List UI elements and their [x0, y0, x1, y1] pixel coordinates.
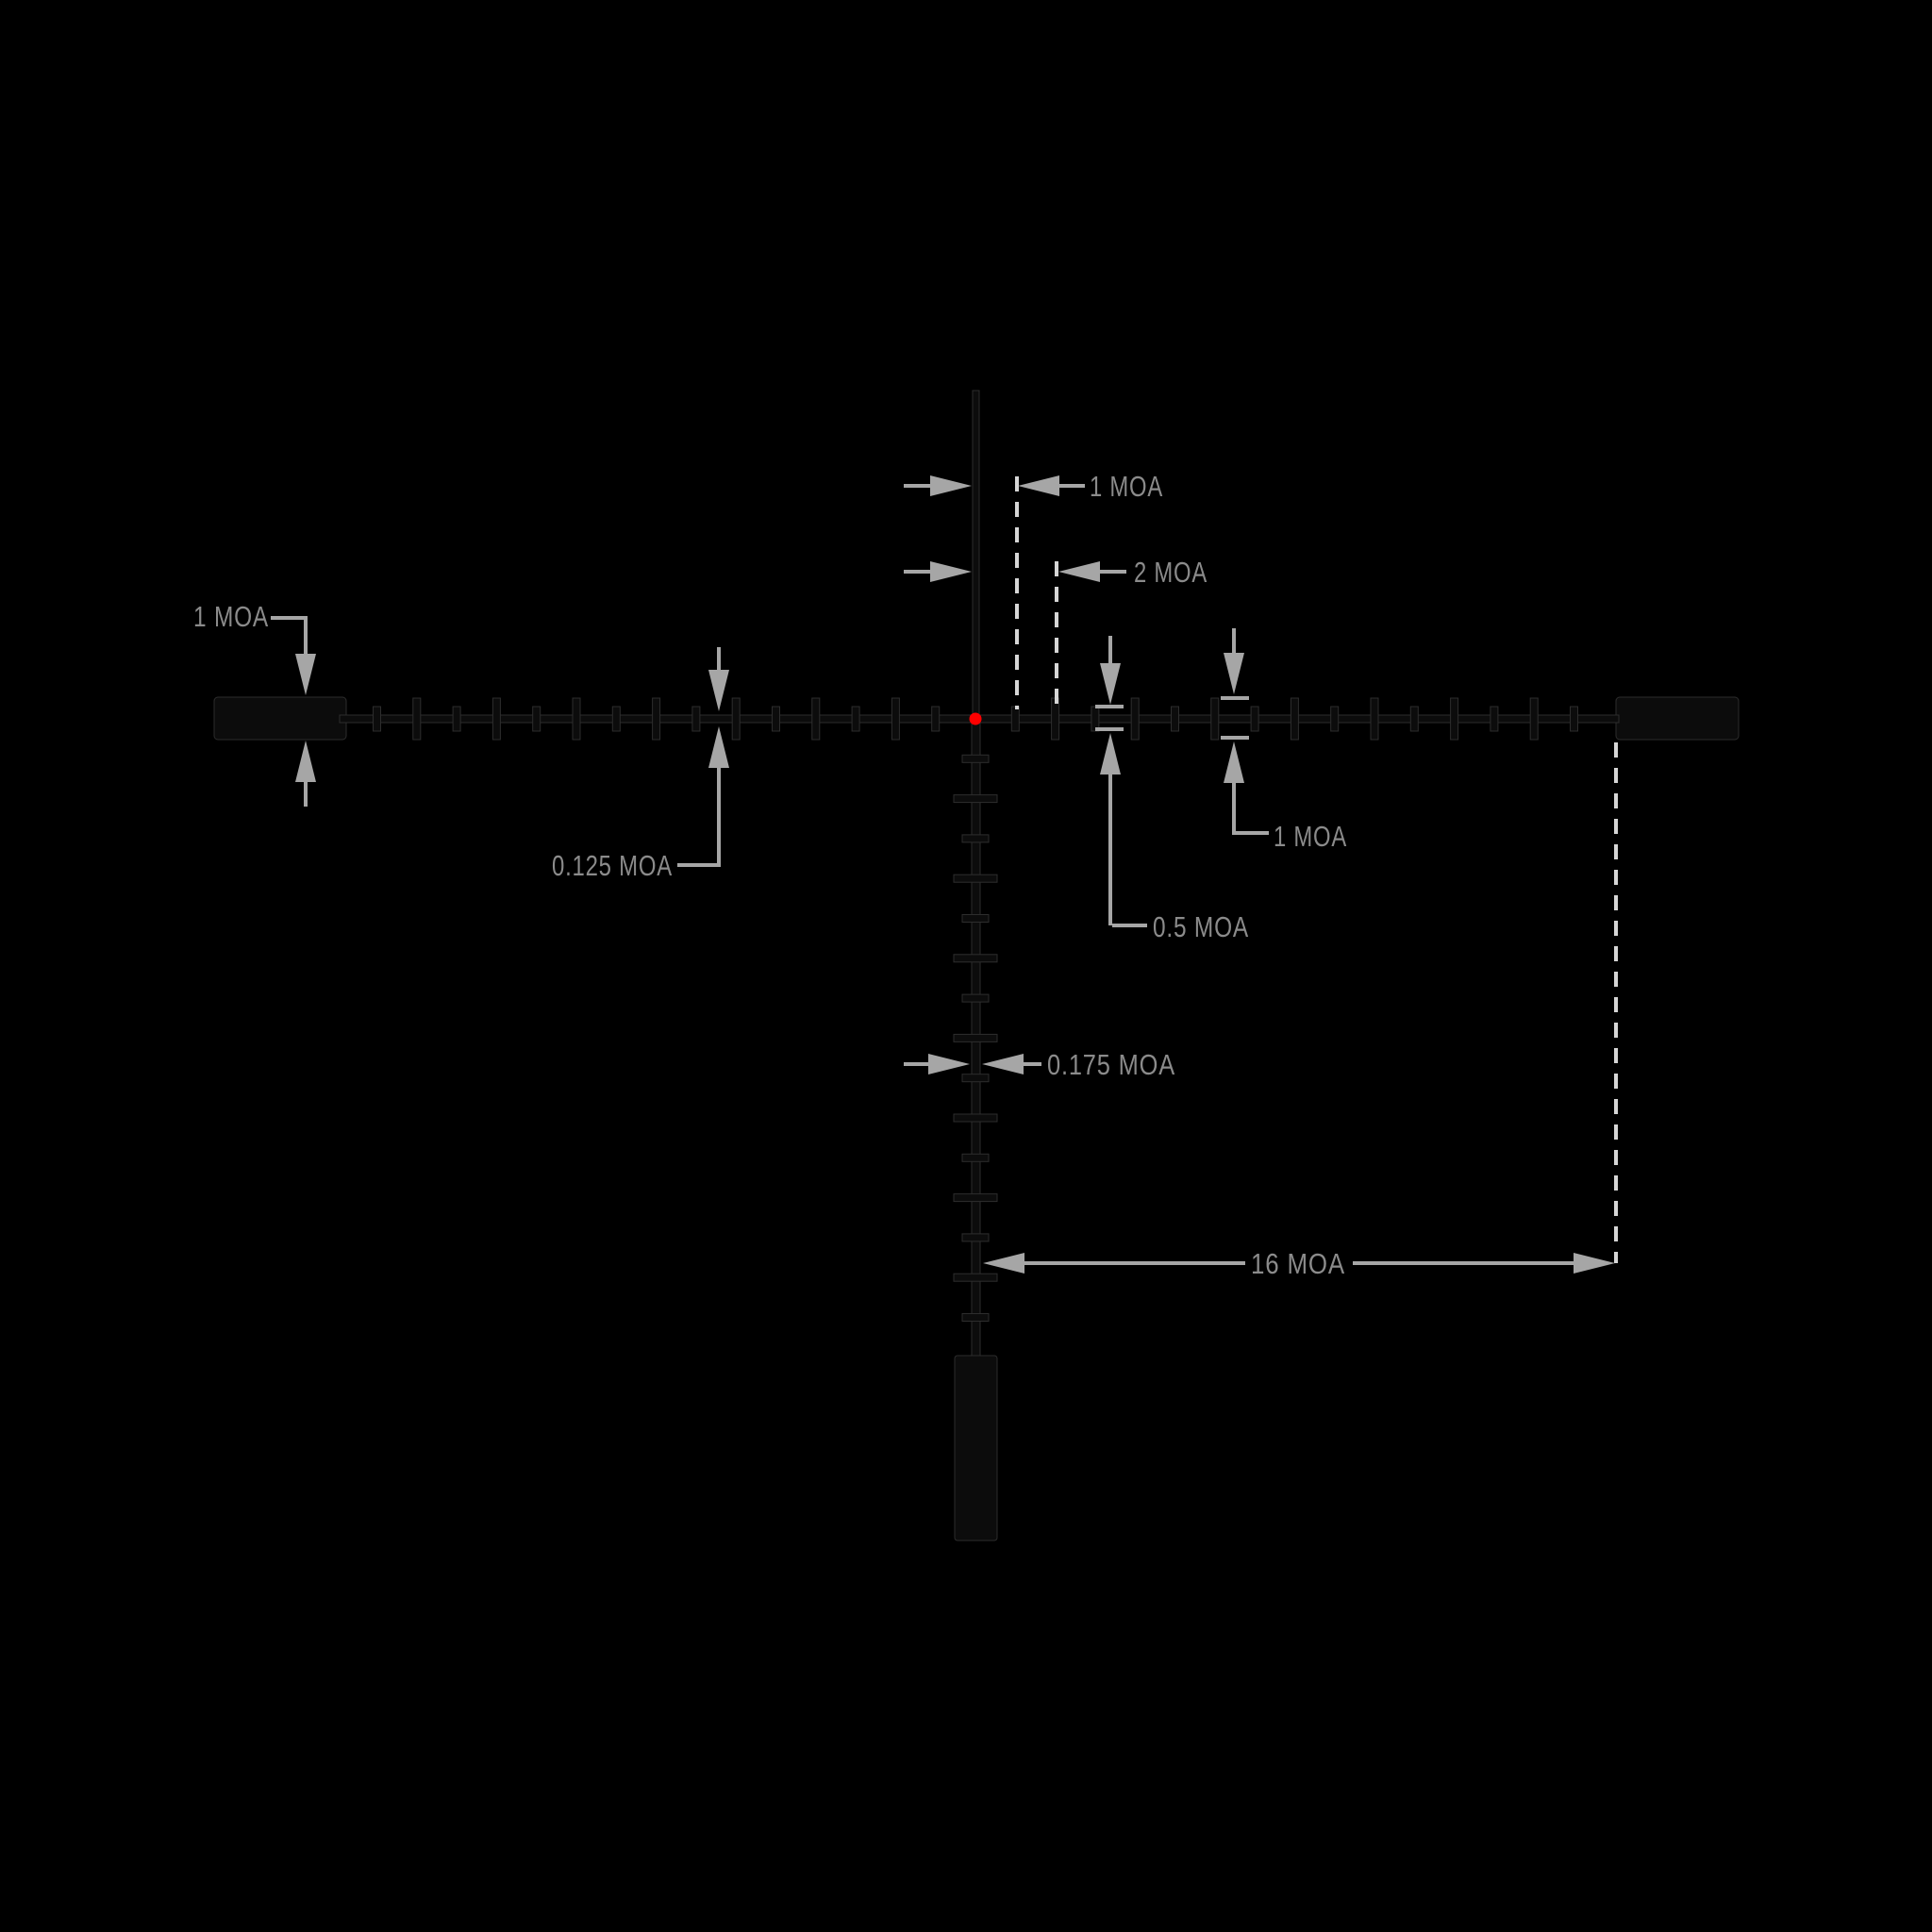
bottom-post: [955, 1356, 997, 1541]
label-center-to-post: 16 MOA: [1251, 1247, 1345, 1280]
h-hash-tall: [812, 698, 820, 740]
dimension-arrowhead: [1018, 475, 1059, 496]
h-hash-tall: [891, 698, 899, 740]
dimension-arrowhead: [1224, 653, 1244, 694]
h-hash-short: [1251, 707, 1258, 731]
dimension-arrowhead: [708, 726, 729, 768]
h-hash-tall: [1131, 698, 1139, 740]
label-crosshair-thickness: 0.125 MOA: [552, 849, 673, 882]
h-hash-tall: [1291, 698, 1298, 740]
v-hash-short: [962, 1314, 989, 1322]
h-hash-tall: [1371, 698, 1378, 740]
label-lower-bar-thickness: 0.175 MOA: [1047, 1048, 1175, 1081]
v-hash-wide: [954, 874, 997, 882]
h-hash-short: [1491, 707, 1498, 731]
h-hash-short: [453, 707, 460, 731]
h-hash-tall: [732, 698, 740, 740]
right-post: [1616, 697, 1739, 740]
h-hash-tall: [1451, 698, 1458, 740]
h-hash-tall: [413, 698, 421, 740]
vertical-hash-marks: [954, 755, 997, 1321]
dimension-arrowhead: [1058, 561, 1100, 582]
v-hash-wide: [954, 795, 997, 803]
h-hash-short: [692, 707, 700, 731]
v-hash-short: [962, 1074, 989, 1082]
h-hash-short: [852, 707, 859, 731]
dimension-arrowhead: [983, 1253, 1024, 1274]
dimension-labels: 1 MOA 2 MOA 1 MOA 0.125 MOA 0.5 MOA 1 MO…: [193, 470, 1347, 1280]
reticle-shapes: [214, 391, 1739, 1541]
label-windage-1moa: 1 MOA: [1090, 470, 1163, 503]
h-hash-short: [1331, 707, 1339, 731]
label-tall-hash-height: 1 MOA: [1274, 820, 1347, 853]
h-hash-short: [932, 707, 940, 731]
v-hash-wide: [954, 955, 997, 962]
h-hash-short: [1410, 707, 1418, 731]
h-hash-short: [612, 707, 620, 731]
dimension-arrowhead: [930, 561, 972, 582]
v-hash-wide: [954, 1274, 997, 1281]
v-hash-wide: [954, 1034, 997, 1041]
dimension-arrowhead: [928, 1054, 970, 1074]
h-hash-tall: [492, 698, 500, 740]
top-vertical-line: [973, 391, 979, 721]
dimension-arrowhead: [295, 654, 316, 695]
v-hash-short: [962, 915, 989, 923]
label-post-height-1moa: 1 MOA: [193, 600, 269, 633]
h-hash-short: [1011, 707, 1019, 731]
reticle-diagram: 1 MOA 2 MOA 1 MOA 0.125 MOA 0.5 MOA 1 MO…: [0, 0, 1932, 1932]
h-hash-short: [773, 707, 780, 731]
dimension-arrowhead: [1100, 733, 1121, 774]
h-hash-short: [1571, 707, 1578, 731]
dimension-arrowhead: [1224, 741, 1244, 783]
leader-line: [271, 618, 306, 625]
h-hash-tall: [1052, 698, 1059, 740]
h-hash-tall: [653, 698, 660, 740]
v-hash-short: [962, 835, 989, 842]
left-post: [214, 697, 346, 740]
dimension-arrowhead: [982, 1054, 1024, 1074]
h-hash-tall: [573, 698, 580, 740]
dimension-arrowhead: [1574, 1253, 1615, 1274]
center-dot: [970, 713, 982, 725]
v-hash-short: [962, 1154, 989, 1161]
v-hash-wide: [954, 1194, 997, 1202]
h-hash-tall: [1530, 698, 1538, 740]
dimension-arrowhead: [295, 741, 316, 782]
h-hash-tall: [1211, 698, 1219, 740]
reticle-diagram-canvas: 1 MOA 2 MOA 1 MOA 0.125 MOA 0.5 MOA 1 MO…: [0, 0, 1932, 1932]
dimension-dashed-lines: [1017, 476, 1616, 1263]
v-hash-wide: [954, 1114, 997, 1122]
h-hash-short: [1172, 707, 1179, 731]
label-short-hash-height: 0.5 MOA: [1153, 910, 1249, 943]
h-hash-short: [374, 707, 381, 731]
label-windage-2moa: 2 MOA: [1134, 556, 1207, 589]
dimension-arrowhead: [930, 475, 972, 496]
dimension-arrowhead: [1100, 663, 1121, 705]
v-hash-short: [962, 994, 989, 1002]
h-hash-short: [533, 707, 541, 731]
dimension-arrowhead: [708, 670, 729, 711]
v-hash-short: [962, 1234, 989, 1241]
v-hash-short: [962, 755, 989, 762]
